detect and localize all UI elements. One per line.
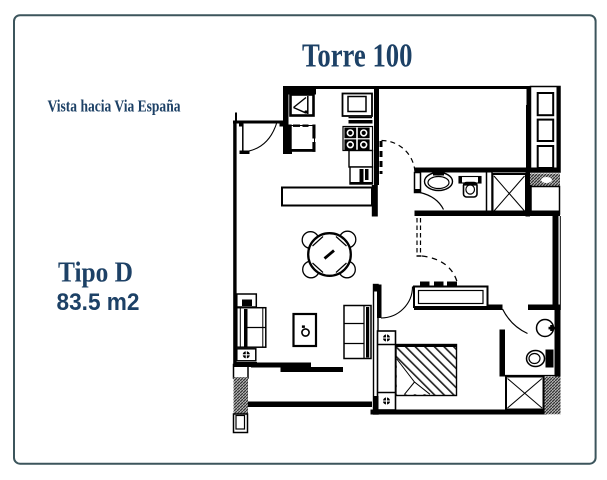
svg-text:Vista hacia Via España: Vista hacia Via España [48, 97, 181, 116]
svg-text:Torre 100: Torre 100 [302, 38, 413, 75]
svg-text:83.5 m2: 83.5 m2 [57, 289, 140, 316]
svg-text:Tipo D: Tipo D [58, 258, 133, 289]
